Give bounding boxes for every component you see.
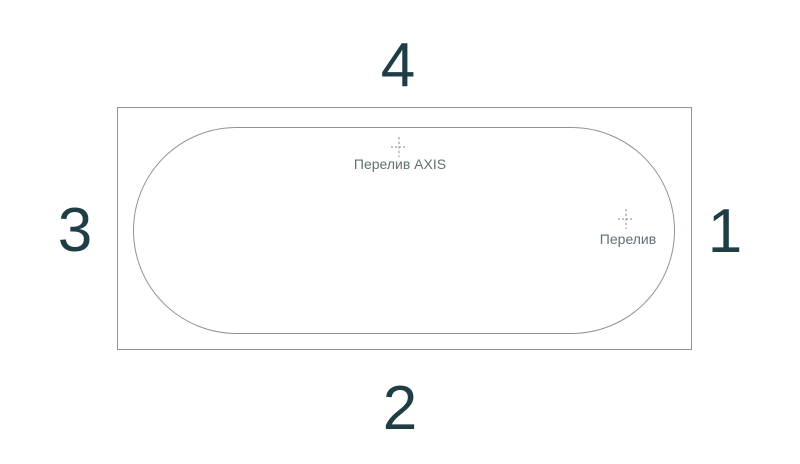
overflow-axis-marker: [388, 136, 410, 158]
overflow-label: Перелив: [600, 231, 656, 248]
side-number-top: 4: [381, 35, 415, 97]
side-number-bottom: 2: [383, 378, 417, 440]
bathtub-top-view-diagram: 4 1 2 3 Перелив AXIS Перелив: [0, 0, 800, 464]
side-number-left: 3: [58, 200, 92, 262]
overflow-axis-label: Перелив AXIS: [354, 156, 446, 173]
side-number-right: 1: [708, 201, 742, 263]
overflow-marker: [615, 208, 637, 230]
crosshair-icon: [388, 136, 410, 158]
crosshair-icon: [615, 208, 637, 230]
